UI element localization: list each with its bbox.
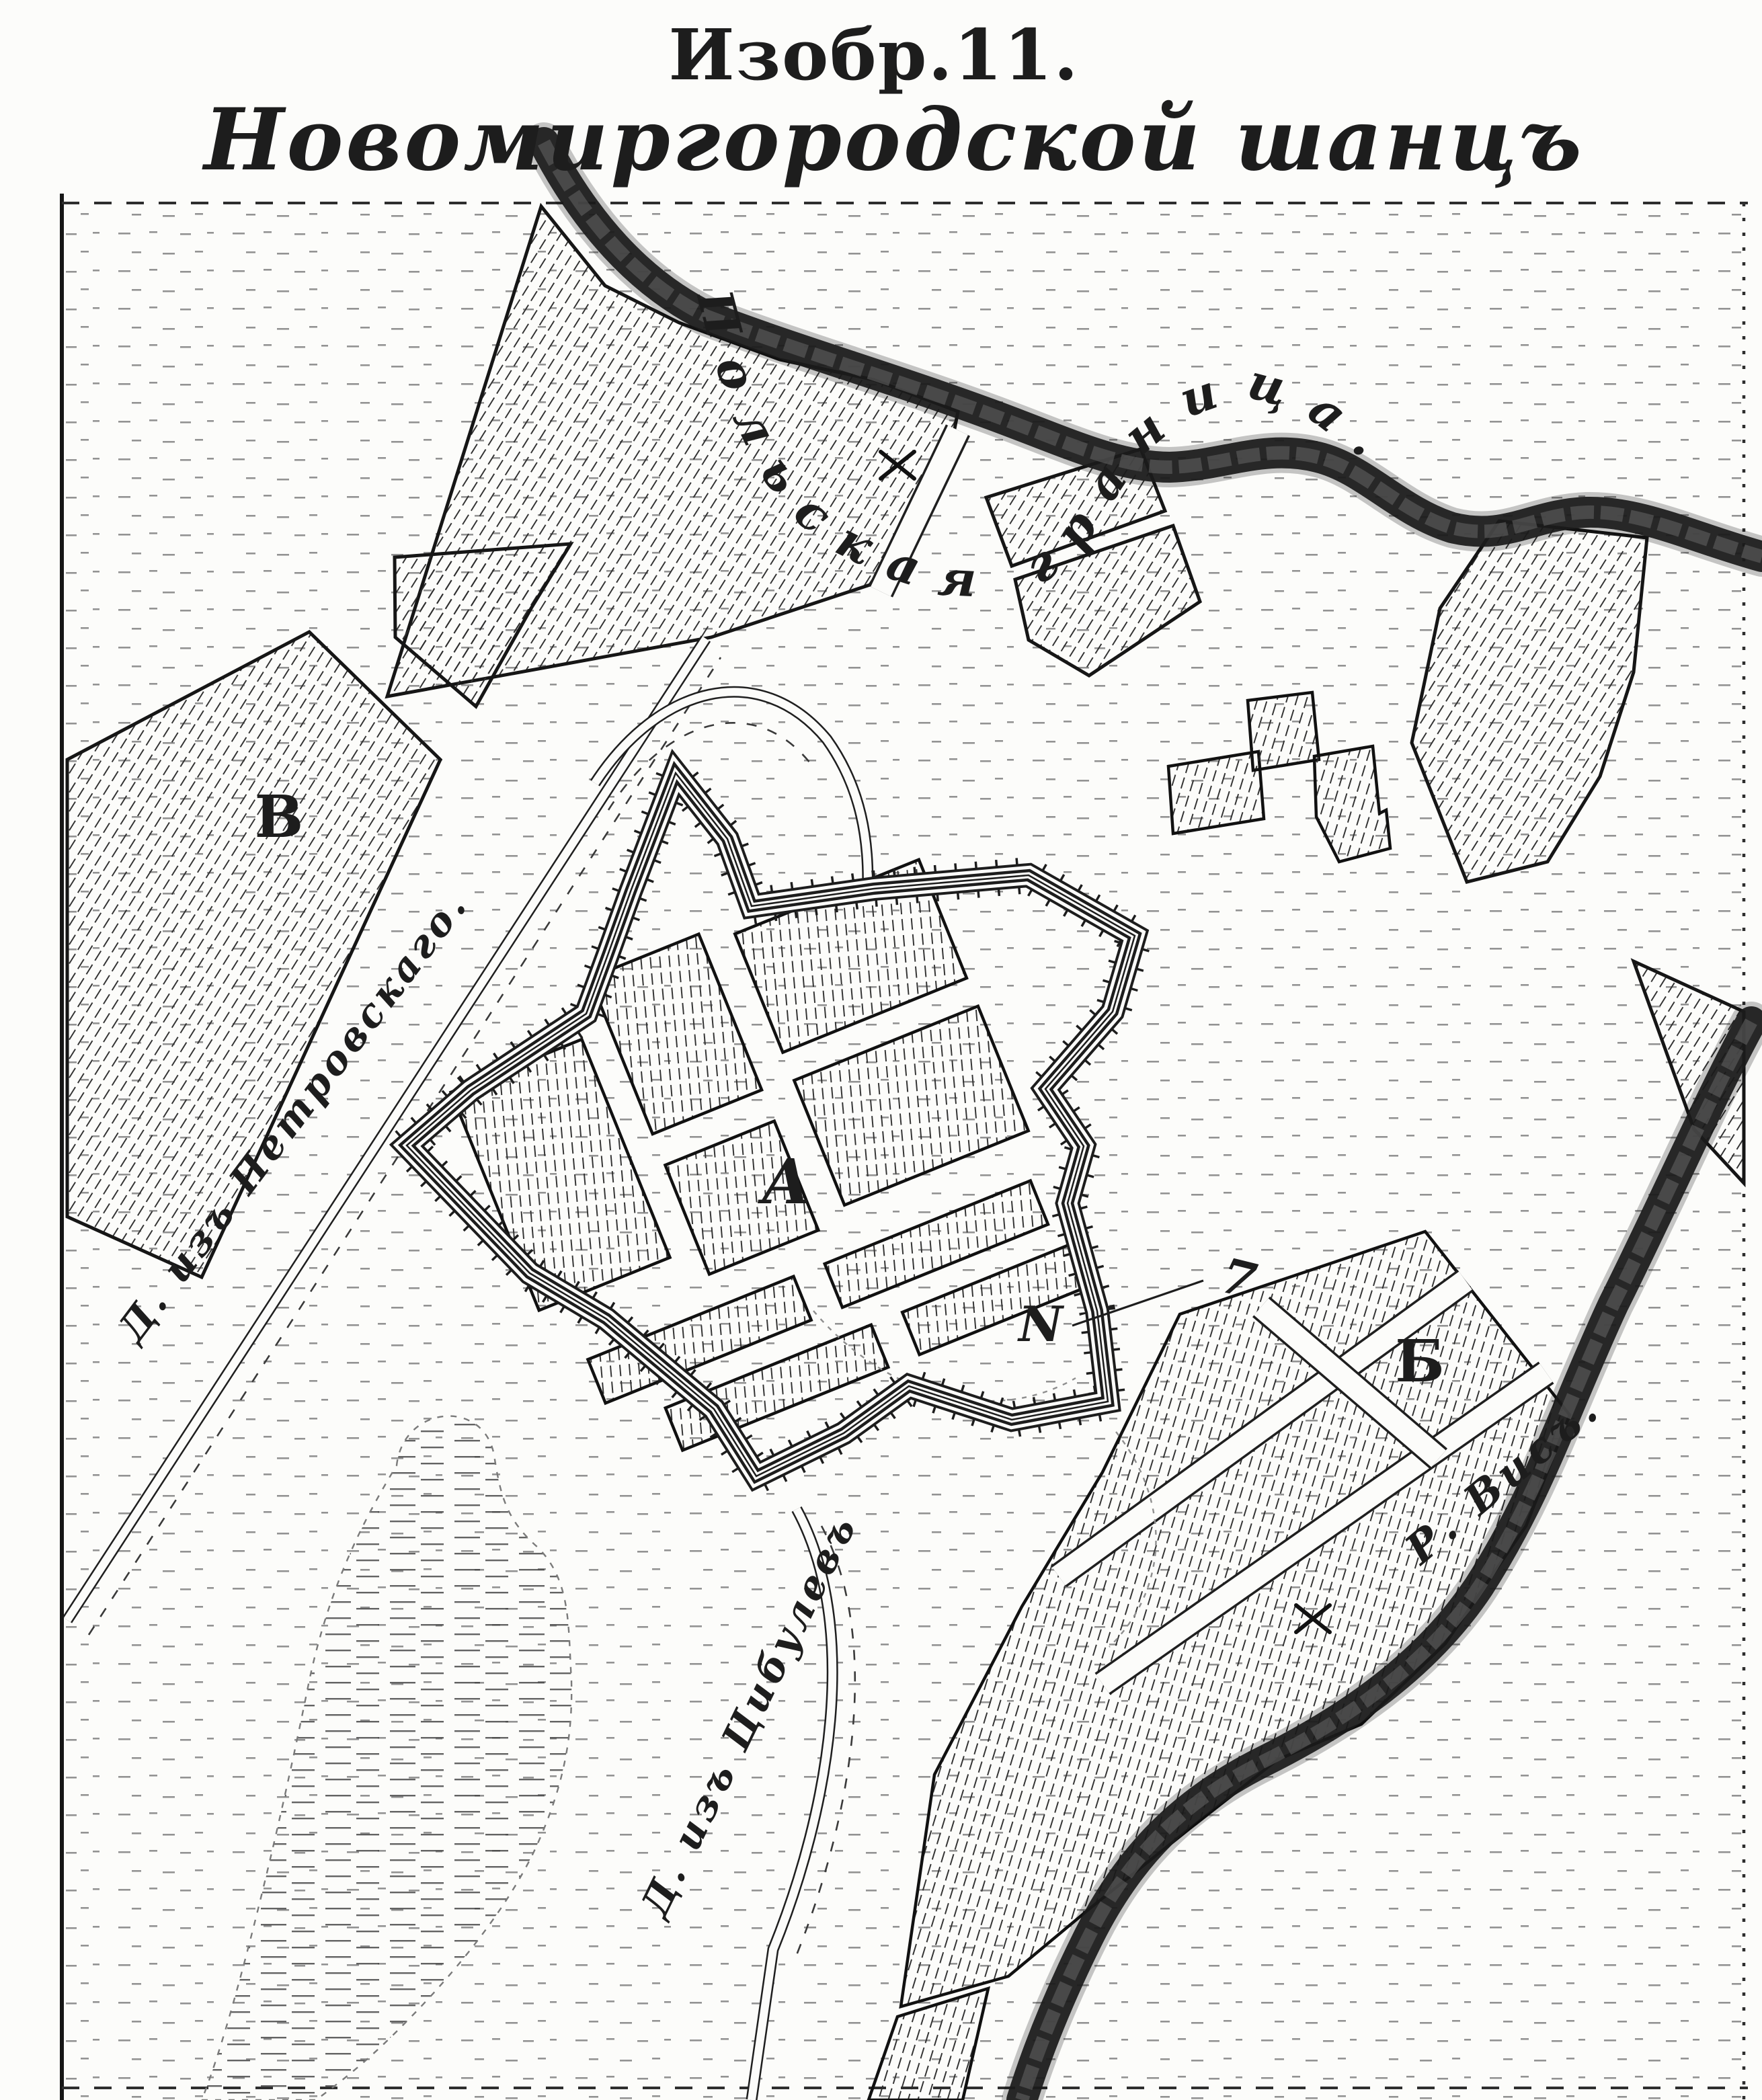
area-label-V: В xyxy=(255,783,304,851)
area-label-B: Б xyxy=(1395,1328,1445,1396)
building-block-rect xyxy=(1168,752,1264,834)
figure-number-title: Изобр.11. xyxy=(668,13,1079,96)
building-block-square xyxy=(1248,692,1319,770)
map-title: Новомиргородской шанцъ xyxy=(202,90,1584,190)
map-canvas: Изобр.11. Новомиргородской шанцъ Польска… xyxy=(0,0,1762,2100)
engraved-map-page: Изобр.11. Новомиргородской шанцъ Польска… xyxy=(0,0,1762,2100)
annotation-n-label: N xyxy=(1017,1295,1065,1352)
area-label-A: А xyxy=(758,1145,812,1218)
